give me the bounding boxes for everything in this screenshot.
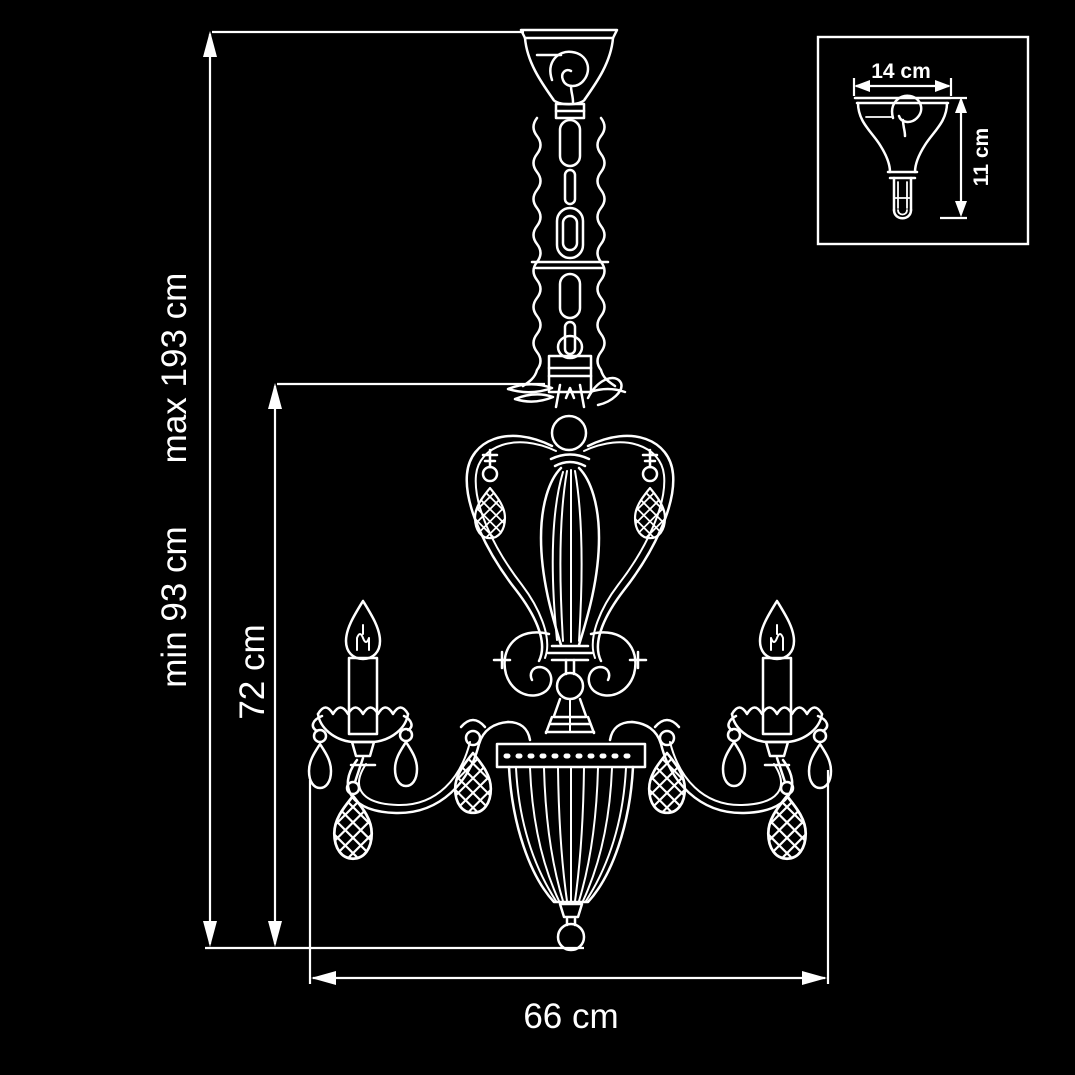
inset-height-label: 11 cm [970,128,993,186]
width-label: 66 cm [523,997,618,1036]
height-max-label: max 193 cm [155,273,194,464]
body-height-label: 72 cm [233,624,272,719]
inset-width-label: 14 cm [871,60,931,83]
chandelier-dimension-diagram: max 193 cm min 93 cm 72 cm 66 cm [0,0,1075,1075]
technical-drawing-canvas: max 193 cm min 93 cm 72 cm 66 cm [0,0,1075,1075]
height-min-label: min 93 cm [155,526,194,687]
